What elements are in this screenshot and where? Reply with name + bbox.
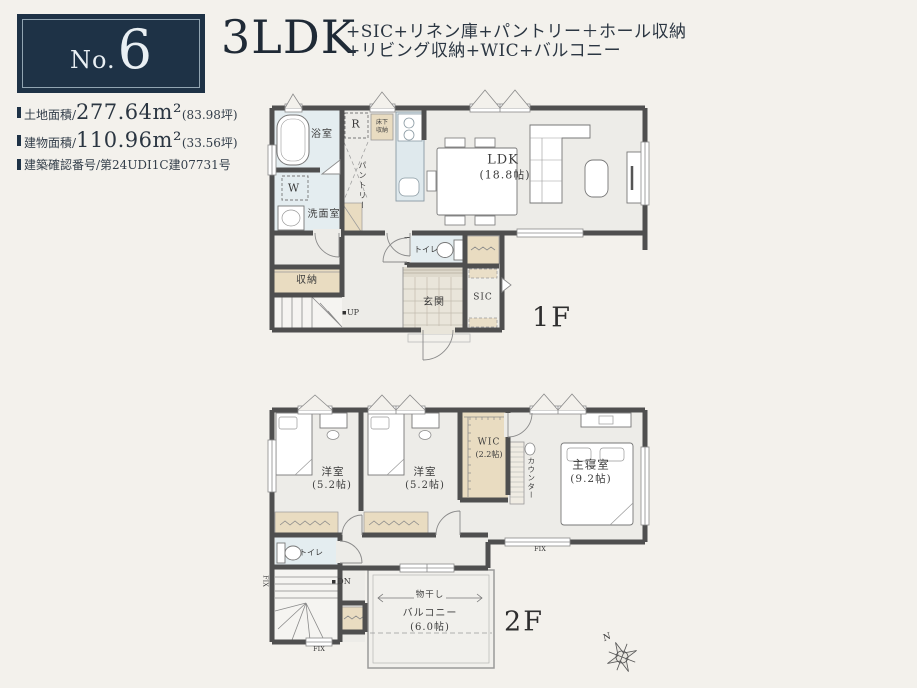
building-area-note: (33.56坪) bbox=[182, 134, 238, 151]
room-label-toilet-2f: トイレ bbox=[299, 549, 323, 557]
room-size-balcony: (6.0帖) bbox=[410, 623, 450, 633]
stairs-up-label: UP bbox=[347, 309, 359, 317]
confirmation-number-row: 建築確認番号/ 第24UDI1C建07731号 bbox=[17, 156, 238, 173]
stairs-dn-label: DN bbox=[337, 578, 350, 586]
lot-number-badge: No. 6 bbox=[17, 14, 205, 93]
room-size-wic: (2.2帖) bbox=[476, 451, 503, 459]
room-label-room1: 洋室 bbox=[322, 467, 345, 478]
room-label-room2: 洋室 bbox=[414, 467, 437, 478]
confirmation-number-label: 建築確認番号/ bbox=[24, 156, 100, 173]
building-area-label: 建物面積/ bbox=[24, 134, 76, 151]
room-label-ldk: LDK bbox=[487, 154, 519, 167]
laundry-pole-label: 物干し bbox=[416, 591, 445, 600]
underfloor-storage-label2: 収納 bbox=[376, 128, 388, 134]
washer-label: W bbox=[288, 183, 300, 194]
land-area-row: 土地面積/ 277.64m² (83.98坪) bbox=[17, 100, 238, 124]
room-size-master: (9.2帖) bbox=[570, 474, 611, 485]
confirmation-number-value: 第24UDI1C建07731号 bbox=[100, 156, 231, 173]
underfloor-storage-label: 床下 bbox=[376, 120, 388, 126]
room-label-washroom: 洗面室 bbox=[308, 210, 341, 220]
land-area-label: 土地面積/ bbox=[24, 106, 76, 123]
counter-label: カウンター bbox=[527, 457, 535, 500]
fix-window-label-left: FIX bbox=[262, 575, 269, 587]
room-label-toilet-1f: トイレ bbox=[414, 246, 438, 254]
floor-plan-1f: 浴室 W 洗面室 R 床下 収納 パントリー 収納 UP トイレ 玄関 SIC … bbox=[258, 78, 668, 383]
layout-title: 3LDK bbox=[221, 10, 356, 64]
lot-number-badge-inner: No. 6 bbox=[22, 19, 200, 88]
flyer-page: No. 6 3LDK +SIC+リネン庫+パントリー＋ホール収納 +リビング収納… bbox=[0, 0, 917, 688]
room-label-wic: WIC bbox=[478, 439, 501, 448]
bullet-icon bbox=[17, 159, 21, 170]
fix-window-label-stairs: FIX bbox=[313, 646, 325, 653]
badge-prefix: No. bbox=[70, 30, 116, 90]
subtitle-line2: +リビング収納+WIC+バルコニー bbox=[346, 42, 686, 61]
building-area-value: 110.96m² bbox=[76, 128, 182, 152]
fix-window-label-master: FIX bbox=[534, 546, 546, 553]
room-label-storage: 収納 bbox=[296, 276, 318, 286]
room-label-entrance: 玄関 bbox=[423, 298, 445, 308]
room-label-master: 主寝室 bbox=[572, 459, 610, 471]
land-area-value: 277.64m² bbox=[76, 100, 182, 124]
room-size-room1: (5.2帖) bbox=[312, 481, 352, 491]
room-size-ldk: (18.8帖) bbox=[479, 170, 530, 181]
room-size-room2: (5.2帖) bbox=[405, 481, 445, 491]
building-area-row: 建物面積/ 110.96m² (33.56坪) bbox=[17, 128, 238, 152]
floor-plan-2f: 洋室 (5.2帖) 洋室 (5.2帖) WIC (2.2帖) カウンター 主寝室… bbox=[258, 385, 668, 688]
room-label-sic: SIC bbox=[473, 294, 493, 303]
bullet-icon bbox=[17, 107, 21, 118]
floor-label-2f: 2F bbox=[504, 609, 544, 636]
bullet-icon bbox=[17, 135, 21, 146]
room-label-pantry: パントリー bbox=[358, 161, 366, 211]
land-area-note: (83.98坪) bbox=[182, 106, 238, 123]
floor-label-1f: 1F bbox=[532, 305, 572, 332]
floor-plan-1f-drawing bbox=[258, 78, 668, 383]
room-label-balcony: バルコニー bbox=[403, 609, 458, 619]
subtitle-line1: +SIC+リネン庫+パントリー＋ホール収納 bbox=[346, 23, 686, 42]
room-label-bath: 浴室 bbox=[311, 130, 333, 140]
badge-number: 6 bbox=[118, 20, 152, 80]
property-details: 土地面積/ 277.64m² (83.98坪) 建物面積/ 110.96m² (… bbox=[17, 100, 238, 177]
layout-subtitle: +SIC+リネン庫+パントリー＋ホール収納 +リビング収納+WIC+バルコニー bbox=[346, 23, 686, 61]
fridge-label: R bbox=[351, 119, 360, 130]
